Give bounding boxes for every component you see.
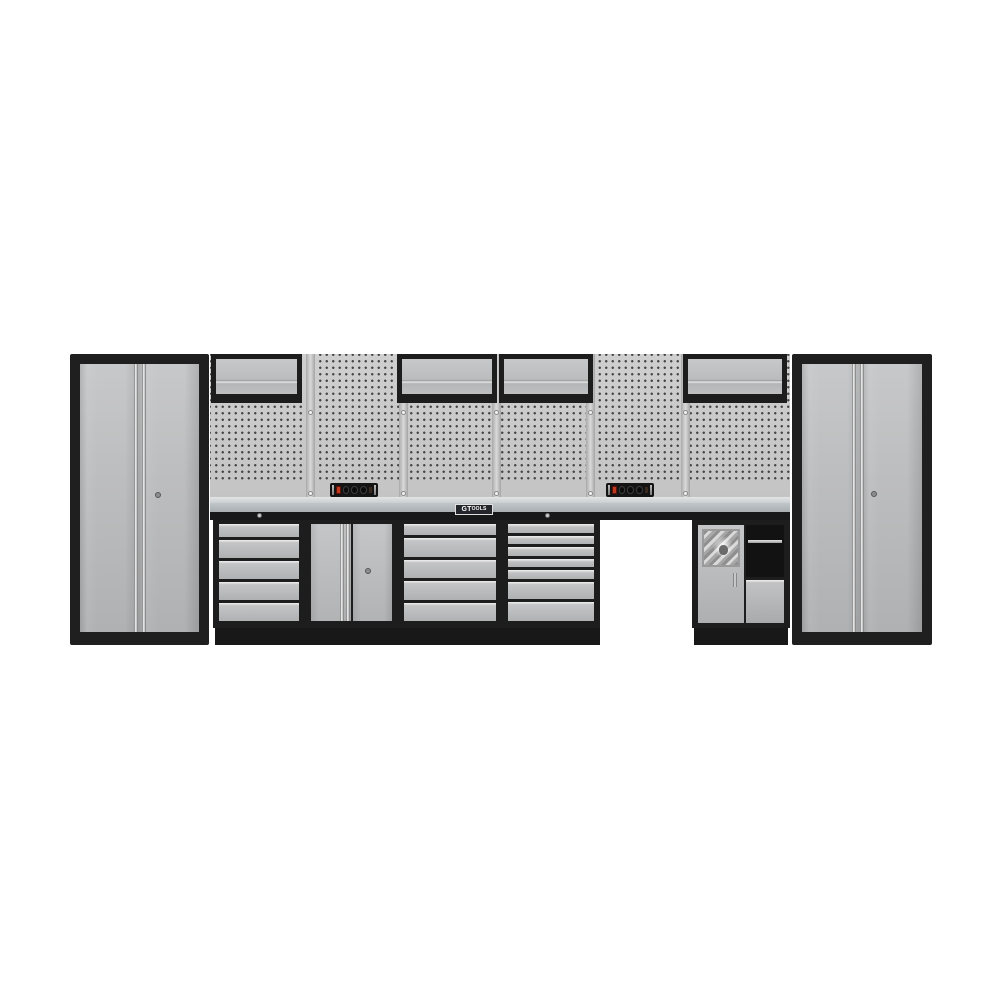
cabinet-door-right[interactable] [353, 524, 393, 621]
combo-drawer[interactable] [746, 580, 784, 623]
keyhole-icon [155, 492, 161, 498]
wall-cabinet-door[interactable] [402, 359, 492, 394]
drawer[interactable] [404, 603, 496, 621]
lock-icon [257, 513, 262, 518]
drawer-unit-a [213, 520, 305, 628]
drawer[interactable] [404, 581, 496, 599]
wall-cabinet-4 [683, 354, 787, 403]
pegboard-rail [306, 354, 315, 499]
screw-icon [401, 491, 406, 496]
drawer-unit-c [502, 520, 600, 628]
power-strip-endcap [374, 485, 376, 495]
drawer[interactable] [508, 570, 594, 579]
drawer-stack [508, 524, 594, 621]
base-plinth-left [215, 628, 600, 645]
power-socket[interactable] [343, 486, 350, 494]
drawer[interactable] [508, 602, 594, 621]
drawer[interactable] [508, 524, 594, 533]
tall-locker-right [792, 354, 932, 645]
drawer[interactable] [219, 603, 299, 621]
drawer[interactable] [508, 536, 594, 545]
door-trim [338, 524, 352, 621]
trim-stripe [142, 364, 146, 632]
trim-stripe [134, 364, 138, 632]
trim-stripe [340, 524, 344, 621]
product-photo-page: { "brand": { "logo_prefix": "GT", "logo_… [0, 0, 1000, 1000]
power-switch[interactable] [612, 486, 616, 494]
wall-cabinet-1 [211, 354, 302, 403]
floor-door-cabinet [305, 520, 398, 628]
screw-icon [494, 410, 499, 415]
workbench-front-edge [210, 503, 790, 512]
locker-door-right[interactable] [140, 364, 200, 632]
keyhole-icon [871, 491, 877, 497]
base-plinth-right [694, 628, 788, 645]
wall-cabinet-3 [499, 354, 593, 403]
workbench-underside [210, 512, 790, 520]
locker-door-left[interactable] [80, 364, 140, 632]
drawer[interactable] [508, 559, 594, 568]
open-shelf-compartment [746, 525, 784, 577]
tall-locker-left [70, 354, 209, 645]
wall-cabinet-door[interactable] [688, 359, 782, 394]
dispenser-graphic [719, 545, 728, 555]
trim-stripe [852, 364, 856, 632]
door-trim [850, 364, 866, 632]
drawer-stack [404, 524, 496, 621]
wall-cabinet-door[interactable] [216, 359, 297, 394]
dispenser-door[interactable] [698, 525, 744, 623]
wall-cabinet-2 [397, 354, 497, 403]
screw-icon [683, 491, 688, 496]
drawer[interactable] [508, 547, 594, 556]
power-socket[interactable] [360, 486, 367, 494]
drawer-stack [219, 524, 299, 621]
power-socket[interactable] [619, 486, 626, 494]
screw-icon [308, 491, 313, 496]
workbench-top: GTOOLS [210, 497, 790, 520]
trim-stripe [860, 364, 864, 632]
power-strip [330, 483, 378, 497]
screw-icon [588, 410, 593, 415]
drawer[interactable] [219, 582, 299, 600]
power-strip-endcap [650, 485, 652, 495]
lock-icon [545, 513, 550, 518]
power-strip [606, 483, 654, 497]
keyhole-icon [365, 568, 371, 574]
dispenser-window [702, 529, 740, 567]
combo-cabinet [692, 520, 790, 628]
door-handle[interactable] [733, 573, 737, 587]
screw-icon [401, 410, 406, 415]
wall-cabinet-door[interactable] [504, 359, 588, 394]
brand-logo: GTOOLS [455, 504, 493, 515]
power-socket[interactable] [627, 486, 634, 494]
screw-icon [683, 410, 688, 415]
screw-icon [588, 491, 593, 496]
drawer[interactable] [404, 560, 496, 578]
locker-door-right[interactable] [862, 364, 922, 632]
drawer[interactable] [219, 540, 299, 558]
screw-icon [494, 491, 499, 496]
drawer[interactable] [219, 524, 299, 537]
power-strip-endcap [608, 485, 610, 495]
trim-stripe [346, 524, 350, 621]
shelf [748, 540, 782, 543]
power-socket[interactable] [351, 486, 358, 494]
door-trim [132, 364, 148, 632]
screw-icon [308, 410, 313, 415]
brand-logo-text: OOLS [472, 507, 487, 512]
brand-logo-text: GT [461, 506, 471, 513]
power-switch[interactable] [336, 486, 340, 494]
power-strip-module [369, 487, 372, 493]
drawer[interactable] [508, 582, 594, 599]
drawer[interactable] [404, 538, 496, 556]
drawer[interactable] [404, 524, 496, 535]
drawer[interactable] [219, 561, 299, 579]
power-socket[interactable] [636, 486, 643, 494]
power-strip-endcap [332, 485, 334, 495]
garage-cabinet-system: GTOOLS [69, 352, 932, 648]
power-strip-module [645, 487, 648, 493]
drawer-unit-b [398, 520, 502, 628]
